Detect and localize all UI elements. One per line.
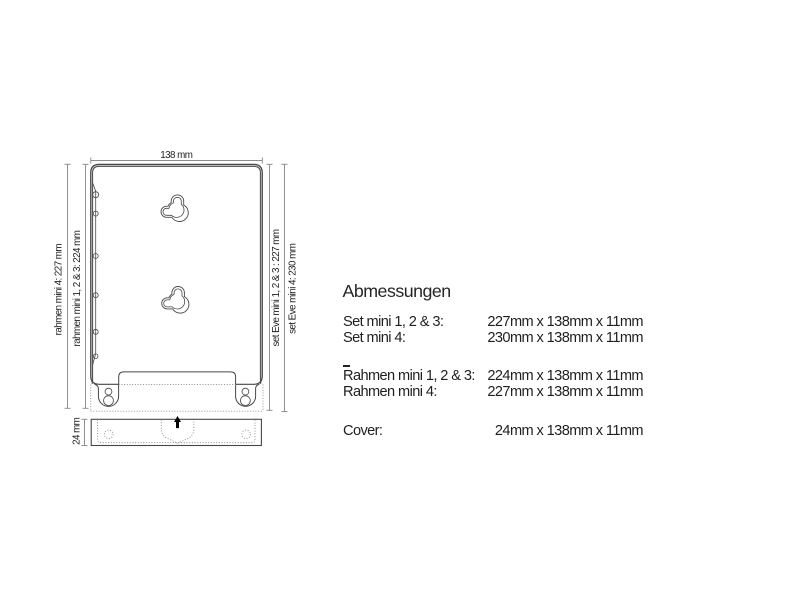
svg-text:138 mm: 138 mm [160, 150, 192, 161]
